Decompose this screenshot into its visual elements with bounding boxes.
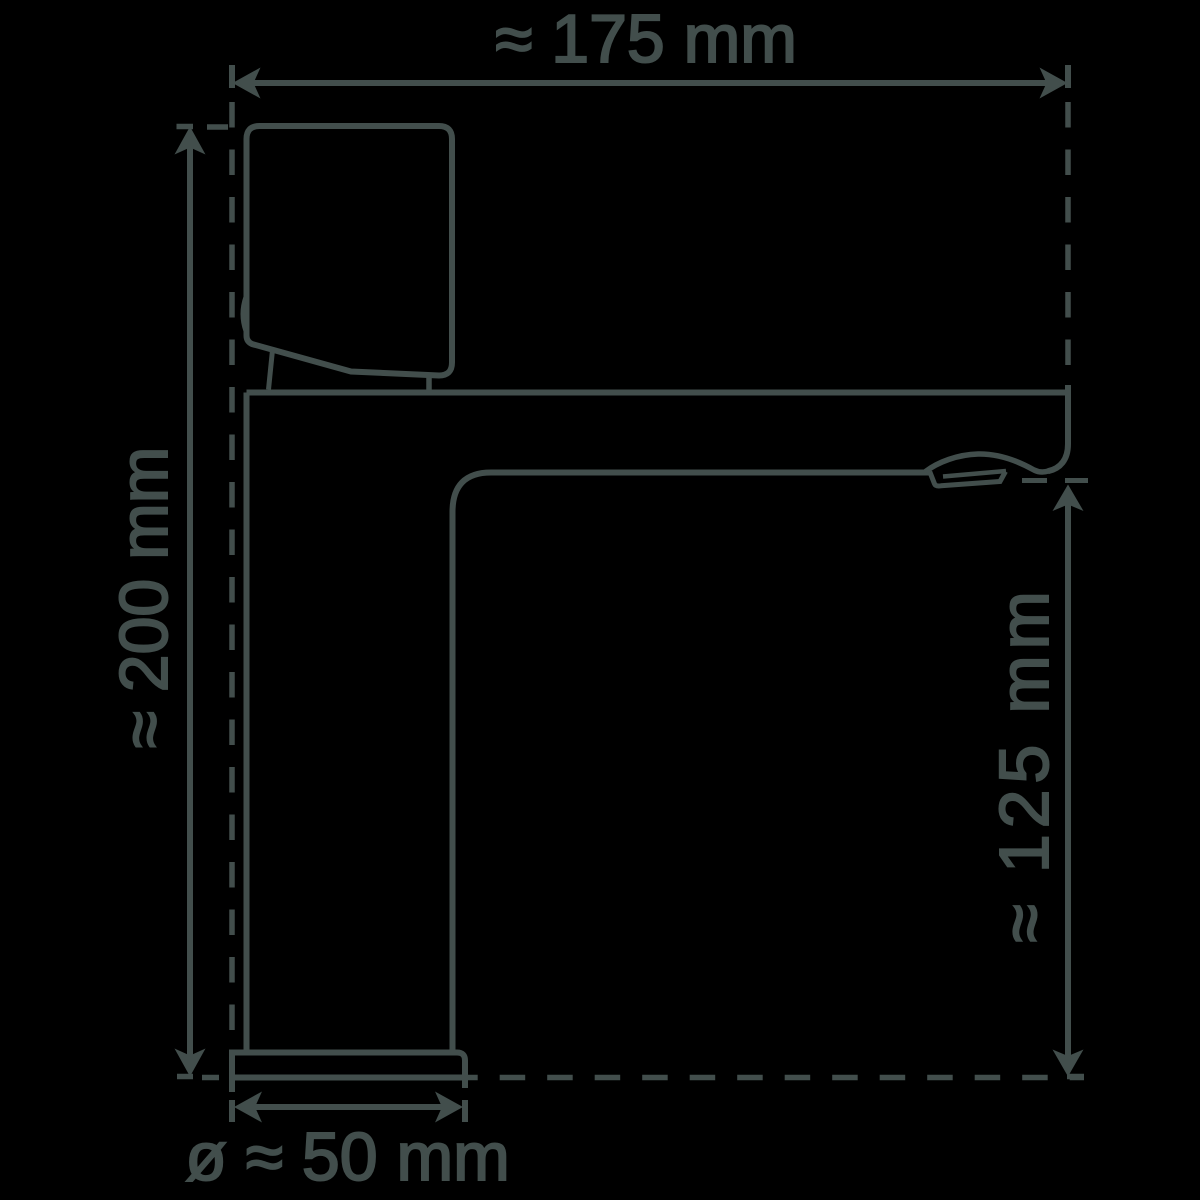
svg-text:ø ≈ 50 mm: ø ≈ 50 mm <box>185 1119 509 1195</box>
svg-text:≈ 125 mm: ≈ 125 mm <box>985 585 1063 942</box>
svg-text:≈ 200 mm: ≈ 200 mm <box>106 447 182 749</box>
svg-text:≈ 175 mm: ≈ 175 mm <box>495 1 797 77</box>
